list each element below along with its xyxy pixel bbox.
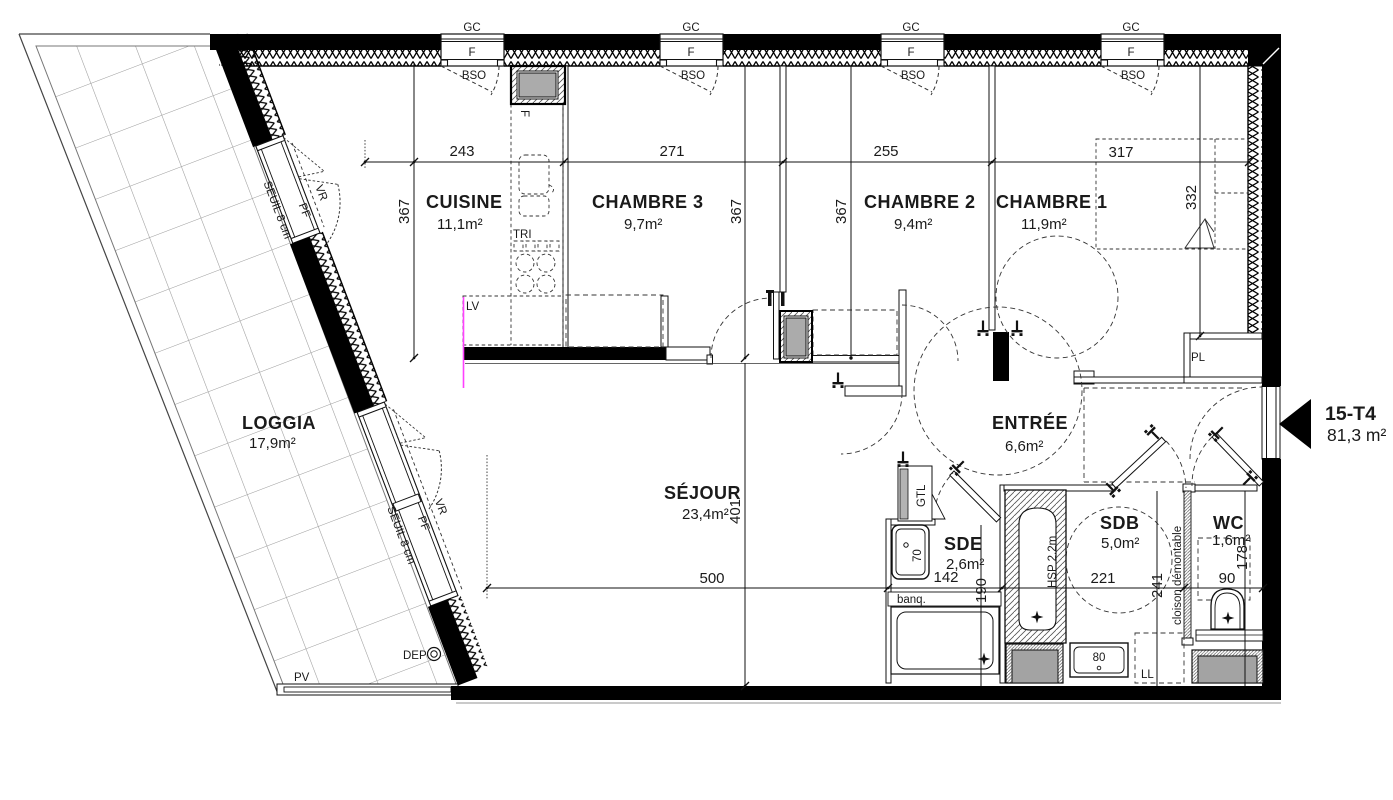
svg-text:WC: WC [1213, 513, 1244, 533]
svg-text:70: 70 [912, 549, 924, 562]
svg-text:11,9m²: 11,9m² [1021, 216, 1067, 233]
svg-text:CHAMBRE 3: CHAMBRE 3 [592, 192, 704, 212]
svg-text:ENTRÉE: ENTRÉE [992, 412, 1068, 433]
svg-text:GC: GC [902, 22, 919, 34]
svg-text:F: F [687, 47, 694, 59]
svg-text:BSO: BSO [462, 70, 486, 82]
svg-text:221: 221 [1090, 570, 1115, 587]
svg-text:CHAMBRE 2: CHAMBRE 2 [864, 192, 976, 212]
svg-text:23,4m²: 23,4m² [682, 506, 729, 523]
svg-text:BSO: BSO [1121, 70, 1145, 82]
svg-text:11,1m²: 11,1m² [437, 216, 483, 233]
svg-text:LL: LL [1141, 669, 1154, 681]
svg-text:cloison démontable: cloison démontable [1172, 526, 1184, 625]
svg-text:401: 401 [727, 499, 744, 524]
svg-text:80: 80 [1093, 652, 1106, 664]
svg-text:317: 317 [1108, 144, 1133, 161]
svg-text:271: 271 [659, 143, 684, 160]
svg-text:SDB: SDB [1100, 513, 1140, 533]
svg-text:CHAMBRE 1: CHAMBRE 1 [996, 192, 1108, 212]
svg-text:190: 190 [973, 578, 990, 603]
svg-text:SDE: SDE [944, 534, 983, 554]
svg-text:500: 500 [699, 570, 724, 587]
svg-text:367: 367 [396, 199, 413, 224]
svg-text:9,4m²: 9,4m² [894, 216, 932, 233]
svg-text:PV: PV [294, 672, 310, 684]
svg-text:81,3 m²: 81,3 m² [1327, 425, 1386, 445]
svg-text:243: 243 [449, 143, 474, 160]
svg-text:F: F [518, 110, 530, 117]
svg-text:DEP: DEP [403, 650, 427, 662]
svg-text:GTL: GTL [916, 484, 928, 507]
svg-text:HSP 2.2m: HSP 2.2m [1047, 536, 1059, 588]
svg-text:5,0m²: 5,0m² [1101, 535, 1139, 552]
svg-text:CUISINE: CUISINE [426, 192, 503, 212]
svg-text:142: 142 [933, 569, 958, 586]
svg-text:BSO: BSO [681, 70, 705, 82]
svg-text:178: 178 [1234, 545, 1251, 570]
svg-text:255: 255 [873, 143, 898, 160]
svg-text:90: 90 [1219, 570, 1236, 587]
svg-text:F: F [468, 47, 475, 59]
svg-text:367: 367 [728, 199, 745, 224]
svg-text:6,6m²: 6,6m² [1005, 438, 1043, 455]
svg-text:GC: GC [682, 22, 699, 34]
svg-text:LOGGIA: LOGGIA [242, 413, 316, 433]
svg-text:TRI: TRI [513, 229, 532, 241]
svg-text:17,9m²: 17,9m² [249, 435, 296, 452]
svg-text:GC: GC [463, 22, 480, 34]
svg-text:BSO: BSO [901, 70, 925, 82]
svg-text:PL: PL [1191, 352, 1206, 364]
svg-text:banq.: banq. [897, 594, 926, 606]
svg-text:15-T4: 15-T4 [1325, 403, 1376, 425]
svg-text:LV: LV [466, 301, 480, 313]
svg-text:9,7m²: 9,7m² [624, 216, 662, 233]
svg-text:F: F [907, 47, 914, 59]
svg-text:367: 367 [833, 199, 850, 224]
svg-text:F: F [1127, 47, 1134, 59]
svg-text:332: 332 [1183, 185, 1200, 210]
svg-text:GC: GC [1122, 22, 1139, 34]
svg-text:241: 241 [1149, 573, 1166, 598]
